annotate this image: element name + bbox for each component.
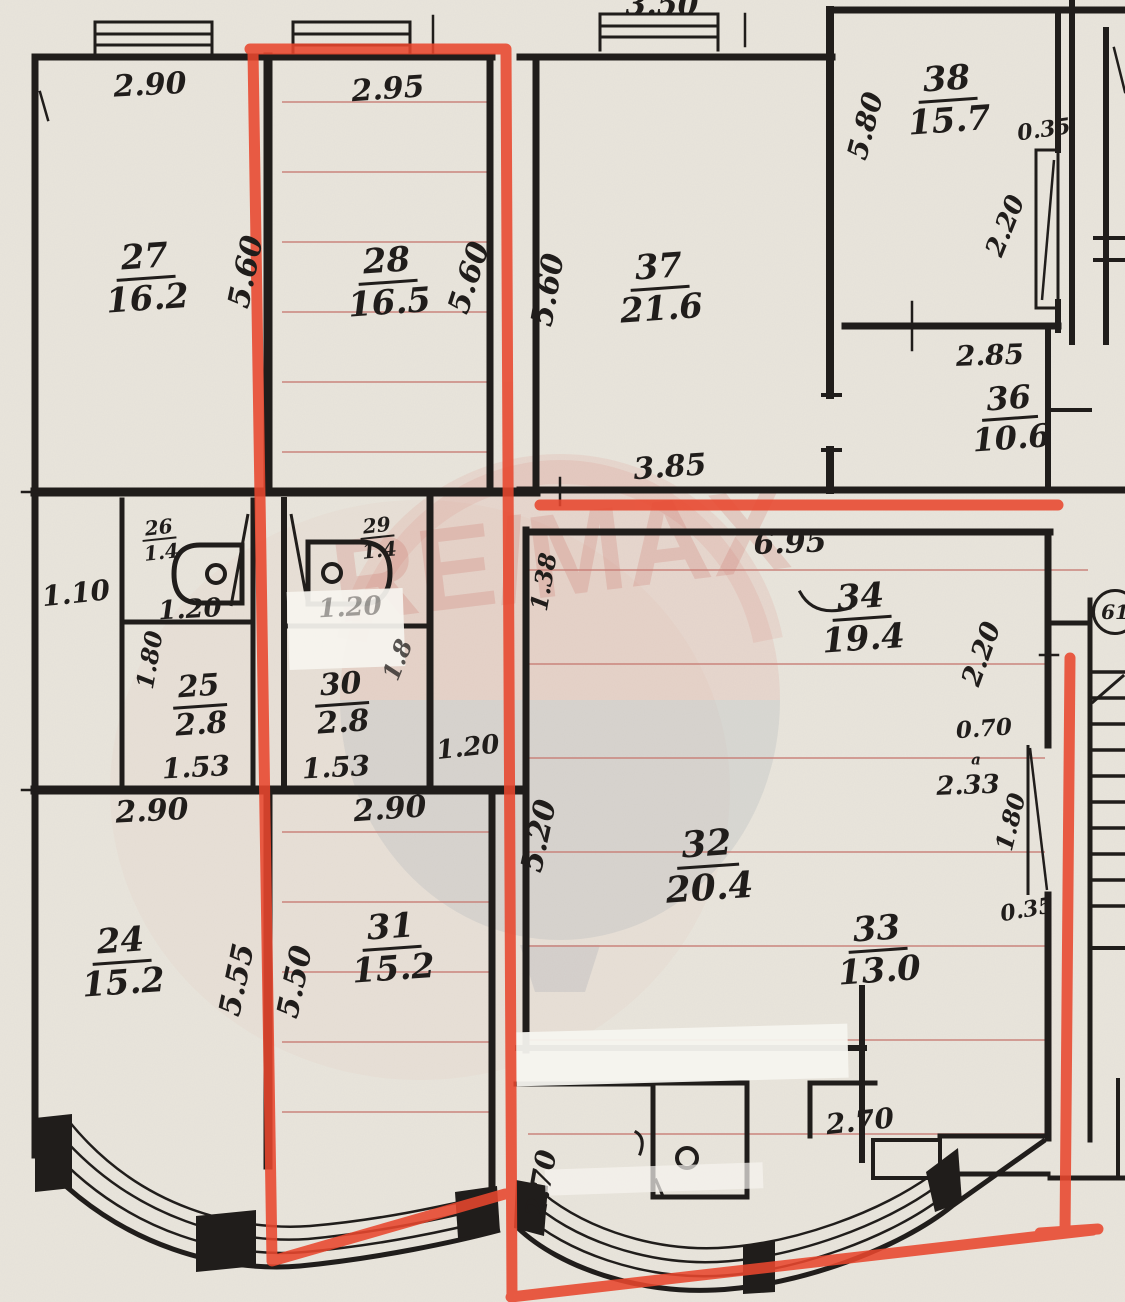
floorplan-page: RE/MAX (0, 0, 1125, 1302)
floorplan-drawing: RE/MAX (0, 0, 1125, 1302)
